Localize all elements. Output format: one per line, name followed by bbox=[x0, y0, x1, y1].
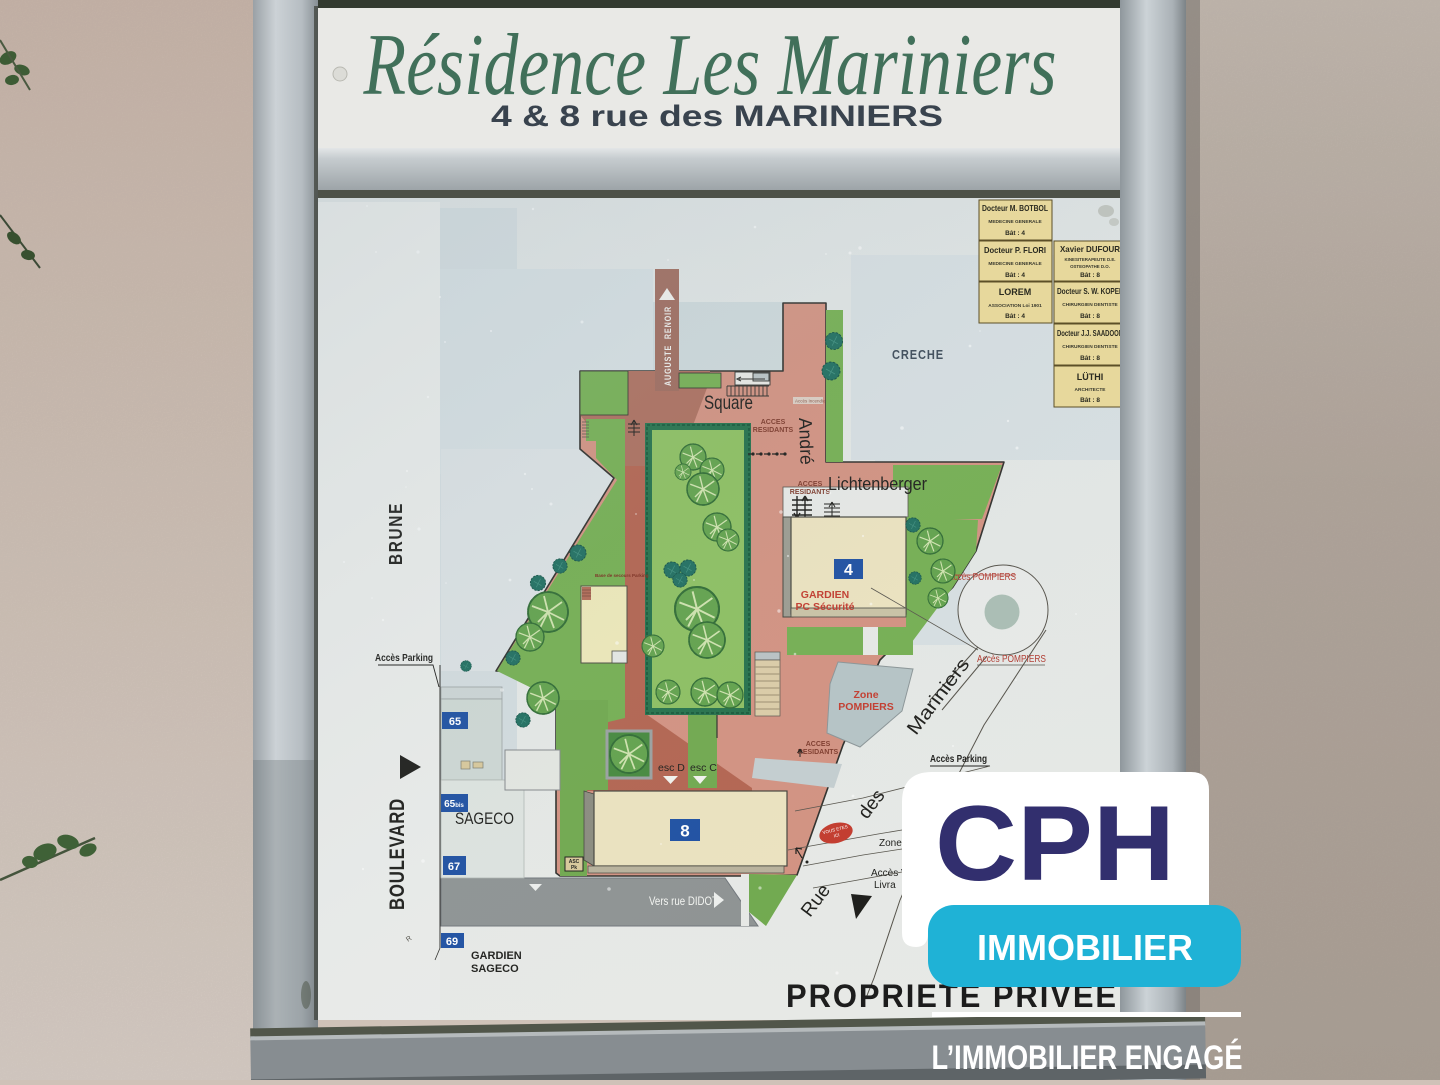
svg-text:MEDECINE GENERALE: MEDECINE GENERALE bbox=[988, 261, 1042, 267]
svg-text:KINESITERAPEUTE D.E.: KINESITERAPEUTE D.E. bbox=[1065, 257, 1116, 262]
svg-text:ARCHITECTE: ARCHITECTE bbox=[1075, 387, 1107, 393]
svg-text:Docteur M. BOTBOL: Docteur M. BOTBOL bbox=[982, 203, 1048, 213]
svg-text:L’IMMOBILIER ENGAGÉ: L’IMMOBILIER ENGAGÉ bbox=[932, 1039, 1243, 1077]
svg-text:LÜTHI: LÜTHI bbox=[1077, 372, 1104, 382]
svg-text:Docteur J.J. SAADOON: Docteur J.J. SAADOON bbox=[1057, 329, 1123, 338]
svg-text:OSTEOPATHE D.O.: OSTEOPATHE D.O. bbox=[1070, 264, 1110, 269]
svg-text:Bât : 8: Bât : 8 bbox=[1080, 397, 1100, 404]
svg-text:Bât : 4: Bât : 4 bbox=[1005, 230, 1025, 237]
svg-text:CPH: CPH bbox=[935, 783, 1175, 903]
svg-text:Bât : 4: Bât : 4 bbox=[1005, 272, 1025, 279]
svg-text:IMMOBILIER: IMMOBILIER bbox=[977, 927, 1193, 968]
svg-text:ASSOCIATION Loi 1901: ASSOCIATION Loi 1901 bbox=[988, 303, 1042, 309]
svg-text:CHIRURGIEN DENTISTE: CHIRURGIEN DENTISTE bbox=[1062, 302, 1118, 308]
svg-text:Bât : 8: Bât : 8 bbox=[1080, 272, 1100, 279]
svg-text:Xavier DUFOUR: Xavier DUFOUR bbox=[1060, 244, 1120, 254]
svg-text:CHIRURGIEN DENTISTE: CHIRURGIEN DENTISTE bbox=[1062, 344, 1118, 350]
svg-text:Bât : 4: Bât : 4 bbox=[1005, 313, 1025, 320]
svg-text:Bât : 8: Bât : 8 bbox=[1080, 313, 1100, 320]
svg-text:Docteur S. W. KOPEL: Docteur S. W. KOPEL bbox=[1057, 286, 1123, 296]
svg-text:MEDECINE GENERALE: MEDECINE GENERALE bbox=[988, 219, 1042, 225]
svg-text:4 & 8 rue des MARINIERS: 4 & 8 rue des MARINIERS bbox=[491, 100, 943, 133]
svg-text:Bât : 8: Bât : 8 bbox=[1080, 355, 1100, 362]
svg-text:Docteur P. FLORI: Docteur P. FLORI bbox=[984, 245, 1046, 255]
svg-text:LOREM: LOREM bbox=[999, 287, 1032, 297]
